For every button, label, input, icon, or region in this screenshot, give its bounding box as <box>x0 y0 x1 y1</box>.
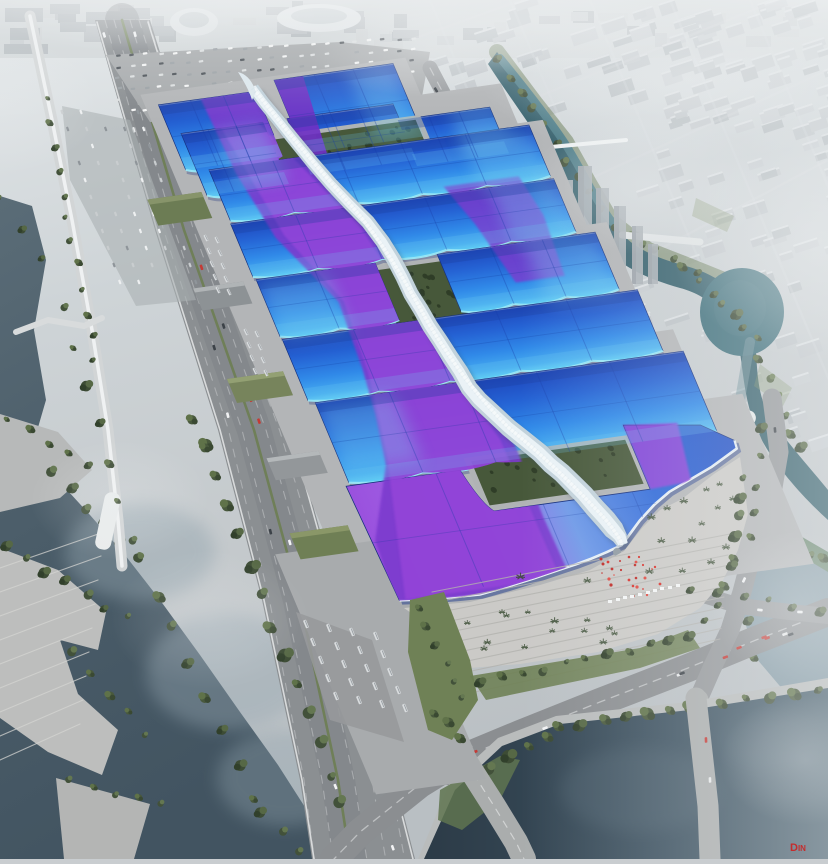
svg-text:DIN: DIN <box>790 842 806 854</box>
